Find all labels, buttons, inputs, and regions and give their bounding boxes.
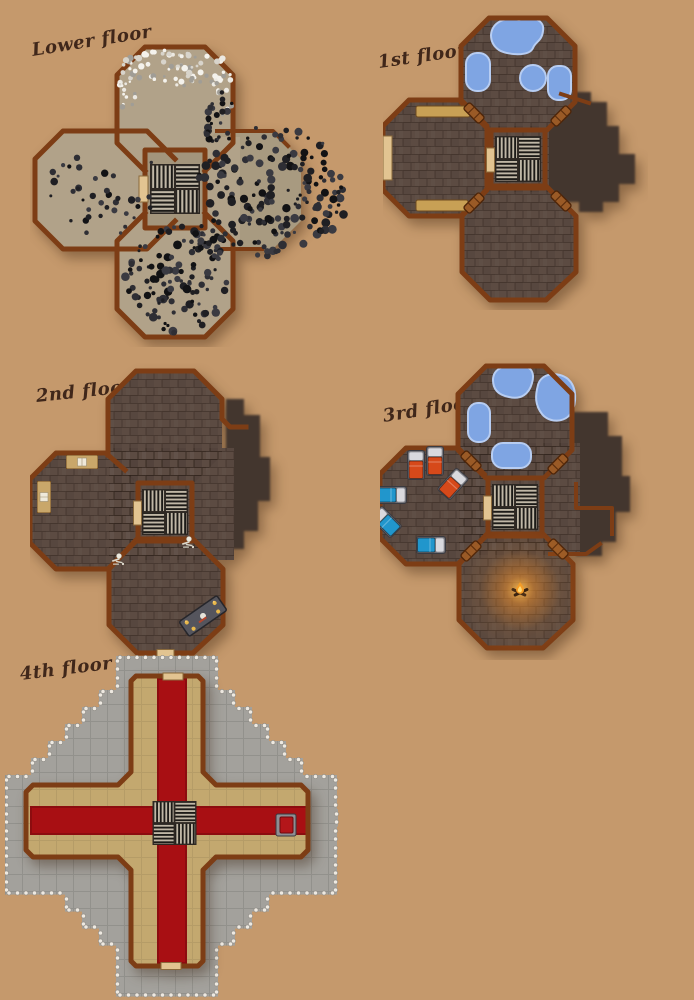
tower-third-floor bbox=[380, 366, 630, 655]
bed-red bbox=[427, 447, 444, 476]
throne bbox=[276, 814, 296, 836]
staircase bbox=[495, 136, 541, 182]
door bbox=[484, 496, 492, 520]
map-first-floor bbox=[383, 10, 648, 310]
water-pool bbox=[520, 65, 546, 91]
table bbox=[416, 200, 468, 211]
door bbox=[161, 963, 181, 970]
staircase bbox=[153, 801, 197, 845]
staircase bbox=[150, 164, 200, 214]
desk-with-book bbox=[66, 455, 98, 469]
tower-roof bbox=[26, 673, 308, 970]
door bbox=[134, 501, 142, 525]
tower-second-floor bbox=[30, 371, 270, 657]
water-pool bbox=[493, 366, 533, 398]
bed-red bbox=[408, 451, 425, 480]
tower-first-floor bbox=[383, 18, 635, 300]
bed-blue bbox=[380, 487, 407, 504]
map-second-floor bbox=[30, 363, 295, 665]
door bbox=[139, 176, 148, 202]
desk-with-book bbox=[37, 481, 51, 513]
fireplace bbox=[383, 136, 392, 180]
map-third-floor bbox=[380, 358, 650, 660]
door bbox=[487, 148, 495, 172]
map-fourth-floor bbox=[5, 653, 350, 998]
door bbox=[163, 673, 183, 680]
map-lower-floor bbox=[30, 32, 360, 347]
campfire bbox=[455, 525, 585, 655]
map-sheet: Lower floor 1st floor bbox=[0, 0, 694, 1000]
water-pool bbox=[466, 53, 490, 91]
water-pool bbox=[492, 443, 531, 468]
staircase bbox=[492, 484, 538, 530]
water-pool bbox=[468, 403, 490, 442]
table bbox=[416, 106, 470, 117]
staircase bbox=[142, 489, 188, 535]
bed-blue bbox=[417, 537, 446, 554]
